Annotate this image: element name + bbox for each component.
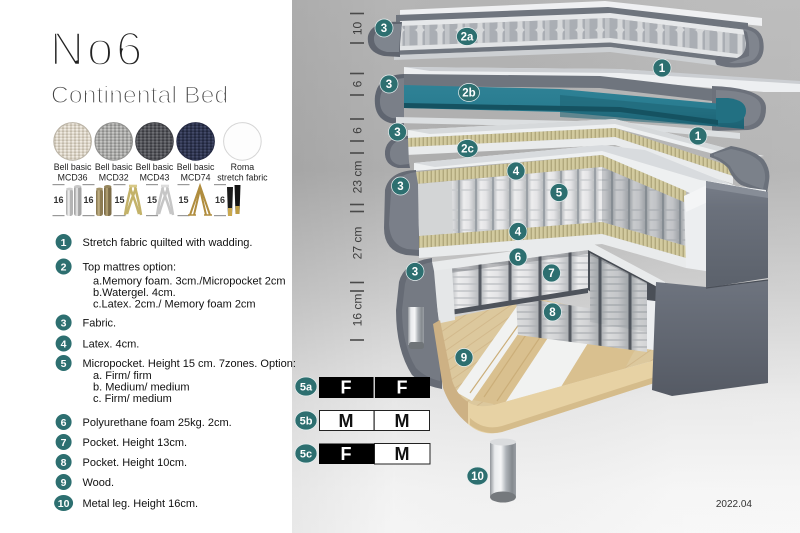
svg-text:MCD36: MCD36 (58, 173, 88, 183)
svg-text:5b: 5b (300, 416, 313, 428)
svg-text:15: 15 (114, 195, 124, 205)
svg-text:a.Memory foam. 3cm./Micropocke: a.Memory foam. 3cm./Micropocket 2cm (93, 276, 286, 288)
svg-text:Stretch fabric quilted with wa: Stretch fabric quilted with wadding. (83, 237, 253, 249)
svg-text:2b: 2b (462, 88, 475, 100)
svg-text:Bell basic: Bell basic (95, 162, 133, 172)
svg-text:1: 1 (695, 131, 702, 143)
svg-text:2022.04: 2022.04 (716, 499, 753, 510)
svg-text:8: 8 (61, 457, 67, 469)
svg-text:Roma: Roma (231, 162, 255, 172)
svg-text:Pocket. Height 13cm.: Pocket. Height 13cm. (83, 437, 188, 449)
svg-text:c. Firm/ medium: c. Firm/ medium (93, 393, 172, 405)
svg-text:MCD43: MCD43 (140, 173, 170, 183)
svg-text:stretch fabric: stretch fabric (217, 173, 268, 183)
svg-text:Top mattres option:: Top mattres option: (83, 262, 177, 274)
svg-text:10: 10 (351, 22, 365, 36)
svg-text:No6: No6 (50, 22, 145, 75)
svg-text:Bell basic: Bell basic (136, 162, 174, 172)
svg-text:F: F (397, 378, 408, 398)
svg-text:Micropocket. Height 15 cm. 7zo: Micropocket. Height 15 cm. 7zones. Optio… (83, 358, 296, 370)
svg-text:15: 15 (147, 195, 157, 205)
svg-text:M: M (395, 411, 410, 431)
svg-text:Latex. 4cm.: Latex. 4cm. (83, 339, 140, 351)
svg-text:3: 3 (397, 181, 403, 193)
svg-text:2a: 2a (461, 32, 474, 44)
svg-text:F: F (341, 378, 352, 398)
svg-text:M: M (395, 444, 410, 464)
svg-text:Fabric.: Fabric. (83, 318, 117, 330)
svg-text:Wood.: Wood. (83, 477, 115, 489)
svg-text:6: 6 (61, 417, 67, 429)
svg-text:1: 1 (61, 237, 67, 249)
svg-text:4: 4 (61, 338, 67, 350)
svg-text:Pocket. Height 10cm.: Pocket. Height 10cm. (83, 457, 188, 469)
svg-text:3: 3 (61, 317, 67, 329)
svg-text:10: 10 (58, 498, 70, 510)
svg-text:23 cm: 23 cm (351, 161, 365, 194)
svg-text:16 cm: 16 cm (351, 294, 365, 327)
svg-text:b.Watergel. 4cm.: b.Watergel. 4cm. (93, 287, 176, 299)
svg-text:MCD74: MCD74 (181, 173, 211, 183)
svg-text:8: 8 (549, 307, 556, 319)
svg-text:16: 16 (53, 195, 63, 205)
svg-text:6: 6 (351, 80, 365, 87)
svg-text:3: 3 (386, 79, 392, 91)
svg-text:3: 3 (412, 267, 418, 279)
svg-text:4: 4 (515, 227, 522, 239)
svg-text:7: 7 (61, 437, 67, 449)
svg-text:Polyurethane foam 25kg. 2cm.: Polyurethane foam 25kg. 2cm. (83, 417, 232, 429)
svg-text:9: 9 (61, 477, 67, 489)
svg-text:5a: 5a (300, 382, 313, 394)
svg-text:16: 16 (83, 195, 93, 205)
svg-text:16: 16 (215, 195, 225, 205)
svg-text:MCD32: MCD32 (99, 173, 129, 183)
svg-text:27 cm: 27 cm (351, 227, 365, 260)
svg-text:5: 5 (61, 358, 67, 370)
svg-text:6: 6 (515, 252, 521, 264)
svg-text:b. Medium/ medium: b. Medium/ medium (93, 382, 190, 394)
svg-text:Bell basic: Bell basic (177, 162, 215, 172)
svg-text:5c: 5c (300, 449, 312, 461)
svg-text:c.Latex. 2cm./ Memory foam 2cm: c.Latex. 2cm./ Memory foam 2cm (93, 299, 256, 311)
svg-text:F: F (341, 444, 352, 464)
svg-text:2c: 2c (461, 144, 474, 156)
svg-text:9: 9 (461, 353, 467, 365)
svg-text:3: 3 (394, 127, 400, 139)
svg-text:Continental Bed: Continental Bed (51, 82, 228, 109)
svg-text:1: 1 (659, 63, 666, 75)
svg-text:7: 7 (548, 268, 554, 280)
svg-text:5: 5 (556, 188, 563, 200)
svg-text:10: 10 (471, 471, 484, 483)
svg-text:Metal leg. Height 16cm.: Metal leg. Height 16cm. (83, 498, 199, 510)
svg-text:M: M (339, 411, 354, 431)
svg-text:4: 4 (513, 166, 520, 178)
svg-text:3: 3 (381, 23, 387, 35)
svg-text:6: 6 (351, 127, 365, 134)
svg-text:15: 15 (178, 195, 188, 205)
svg-text:Bell basic: Bell basic (54, 162, 92, 172)
svg-text:2: 2 (61, 261, 67, 273)
svg-text:a. Firm/ firm: a. Firm/ firm (93, 370, 152, 382)
